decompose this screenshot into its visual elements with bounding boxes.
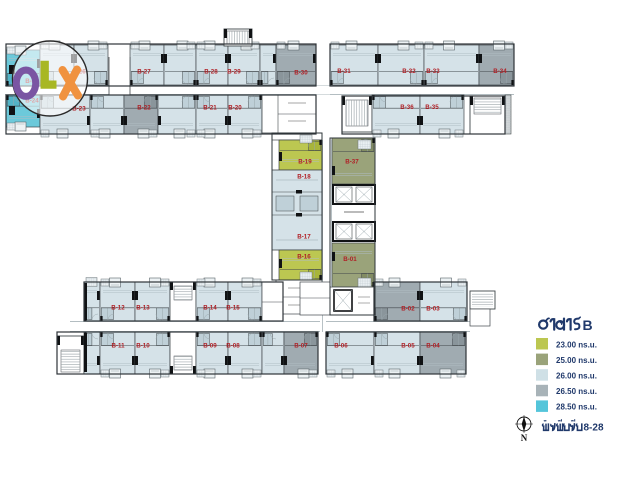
svg-text:B-18: B-18 xyxy=(297,174,311,181)
svg-text:B-21: B-21 xyxy=(203,105,217,112)
svg-text:23.00 ns.u.: 23.00 ns.u. xyxy=(556,340,597,349)
svg-text:B-06: B-06 xyxy=(334,343,348,350)
svg-text:N: N xyxy=(521,433,528,443)
svg-text:B-31: B-31 xyxy=(337,68,351,75)
svg-text:8-28: 8-28 xyxy=(584,422,604,433)
svg-text:26.50 ns.u.: 26.50 ns.u. xyxy=(556,387,597,396)
svg-text:B-22: B-22 xyxy=(137,105,151,112)
svg-text:B-32: B-32 xyxy=(402,68,416,75)
svg-text:B-11: B-11 xyxy=(111,343,125,350)
svg-text:B-36: B-36 xyxy=(400,104,414,111)
svg-text:B-34: B-34 xyxy=(493,68,507,75)
svg-text:B-14: B-14 xyxy=(203,305,217,312)
svg-text:B-07: B-07 xyxy=(294,343,308,350)
svg-text:B-02: B-02 xyxy=(401,306,415,313)
svg-text:25.00 ns.u.: 25.00 ns.u. xyxy=(556,356,597,365)
svg-text:B-08: B-08 xyxy=(226,343,240,350)
svg-text:B-28: B-28 xyxy=(204,69,218,76)
svg-text:B-15: B-15 xyxy=(226,305,240,312)
svg-text:B-33: B-33 xyxy=(426,68,440,75)
svg-text:B-35: B-35 xyxy=(425,104,439,111)
svg-text:B-27: B-27 xyxy=(137,69,151,76)
svg-text:B-20: B-20 xyxy=(228,105,242,112)
svg-text:B-29: B-29 xyxy=(227,69,241,76)
svg-text:B-05: B-05 xyxy=(401,343,415,350)
svg-text:B-13: B-13 xyxy=(136,305,150,312)
svg-text:B-03: B-03 xyxy=(426,306,440,313)
svg-text:B-12: B-12 xyxy=(111,305,125,312)
svg-text:28.50 ns.u.: 28.50 ns.u. xyxy=(556,403,597,412)
svg-text:B-04: B-04 xyxy=(426,343,440,350)
svg-text:B-09: B-09 xyxy=(203,343,217,350)
svg-text:B-01: B-01 xyxy=(343,256,357,263)
svg-text:B-16: B-16 xyxy=(297,254,311,261)
svg-text:B-30: B-30 xyxy=(294,70,308,77)
svg-text:B-37: B-37 xyxy=(345,159,359,166)
svg-text:B-10: B-10 xyxy=(136,343,150,350)
svg-text:B: B xyxy=(583,317,593,333)
svg-text:B-17: B-17 xyxy=(297,234,311,241)
svg-text:B-19: B-19 xyxy=(298,159,312,166)
svg-text:26.00 ns.u.: 26.00 ns.u. xyxy=(556,372,597,381)
